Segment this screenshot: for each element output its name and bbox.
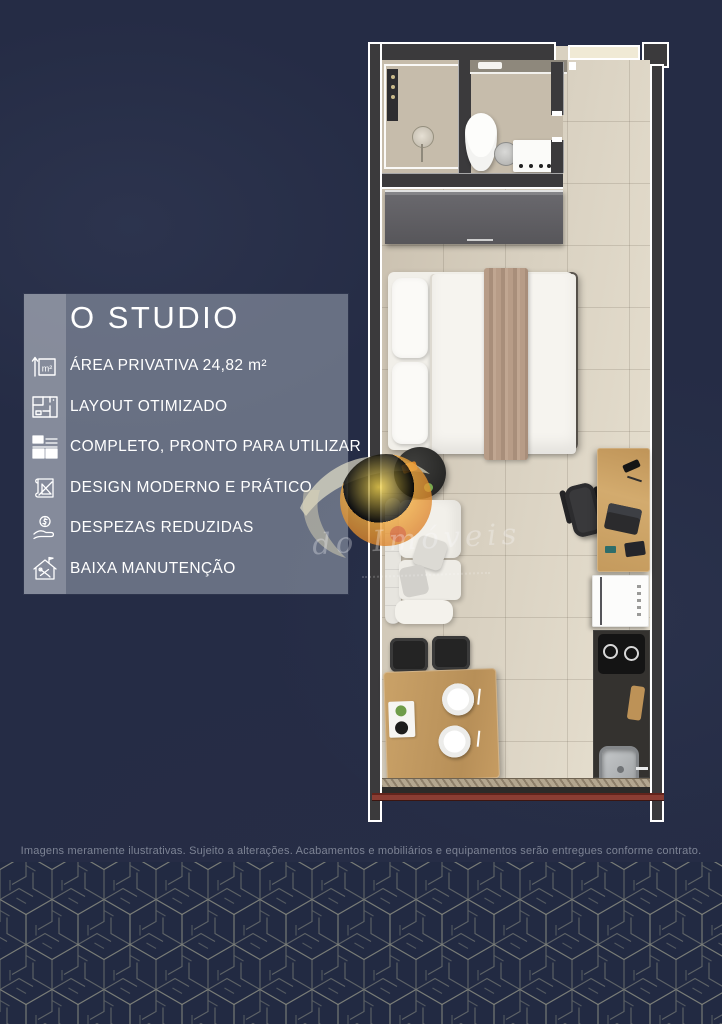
pillow <box>392 278 428 358</box>
door-jamb <box>552 137 562 142</box>
cutlery <box>477 731 481 747</box>
feature-item-area: m² ÁREA PRIVATIVA 24,82 m² <box>24 346 348 387</box>
faucet <box>636 767 648 770</box>
feature-label: DESIGN MODERNO E PRÁTICO <box>70 479 312 497</box>
desk <box>597 448 650 572</box>
bathroom <box>382 60 563 173</box>
dining-chair <box>390 638 428 672</box>
house-tools-icon <box>24 554 66 584</box>
place-setting <box>388 701 415 738</box>
door-threshold <box>556 46 568 60</box>
hex-pattern <box>0 862 722 1024</box>
feature-label: BAIXA MANUTENÇÃO <box>70 560 236 578</box>
toilet <box>465 113 497 171</box>
door-jamb <box>552 111 562 116</box>
shower-head <box>412 126 434 148</box>
shower-niche <box>387 69 398 121</box>
fridge-door-seam <box>600 577 602 625</box>
feature-label: LAYOUT OTIMIZADO <box>70 398 227 416</box>
balcony-rail <box>372 793 664 801</box>
bed <box>388 272 578 450</box>
disclaimer-text: Imagens meramente ilustrativas. Sujeito … <box>0 845 722 857</box>
sofa-ottoman <box>395 600 453 624</box>
wardrobe <box>385 190 563 244</box>
floorplan-icon <box>24 392 66 422</box>
bathroom-wall-right-upper <box>551 62 564 115</box>
shower-stem <box>421 144 423 162</box>
page-title: O STUDIO <box>70 300 240 336</box>
area-icon: m² <box>24 351 66 381</box>
blueprint-icon <box>24 473 66 503</box>
cooktop <box>598 634 645 674</box>
cutlery <box>477 689 481 705</box>
kitchen-counter <box>593 630 650 778</box>
plate <box>442 683 475 716</box>
bowl <box>395 721 408 734</box>
kitchen-icon <box>24 432 66 462</box>
plate <box>438 725 471 758</box>
notebook <box>624 541 646 558</box>
svg-text:m²: m² <box>42 364 53 374</box>
geometric-pattern-band <box>0 862 722 1024</box>
plant-pot <box>395 705 406 716</box>
gadget <box>605 546 616 553</box>
cutting-board <box>627 685 646 721</box>
entry-door <box>568 45 640 60</box>
towel <box>478 62 502 69</box>
refrigerator <box>592 575 649 627</box>
brochure-page: O STUDIO m² ÁREA PRIVATIVA 24,82 m² <box>0 0 722 1024</box>
feature-item-layout: LAYOUT OTIMIZADO <box>24 387 348 428</box>
wall-top <box>368 42 556 62</box>
dining-chair <box>432 636 470 670</box>
throw-blanket <box>484 268 528 460</box>
burner <box>603 644 618 659</box>
laptop <box>604 503 643 536</box>
bathroom-wall-right-lower <box>551 140 564 173</box>
bathroom-wall-bottom <box>382 173 563 189</box>
door-stop <box>569 62 576 70</box>
phone <box>622 459 641 473</box>
feature-label: ÁREA PRIVATIVA 24,82 m² <box>70 357 267 375</box>
dining-table <box>383 668 500 782</box>
wall-right <box>650 64 664 822</box>
burner <box>624 646 639 661</box>
feature-label: DESPEZAS REDUZIDAS <box>70 519 254 537</box>
coin-hand-icon <box>24 513 66 543</box>
drain <box>617 766 624 773</box>
pen <box>627 476 642 483</box>
fridge-label <box>637 585 641 617</box>
